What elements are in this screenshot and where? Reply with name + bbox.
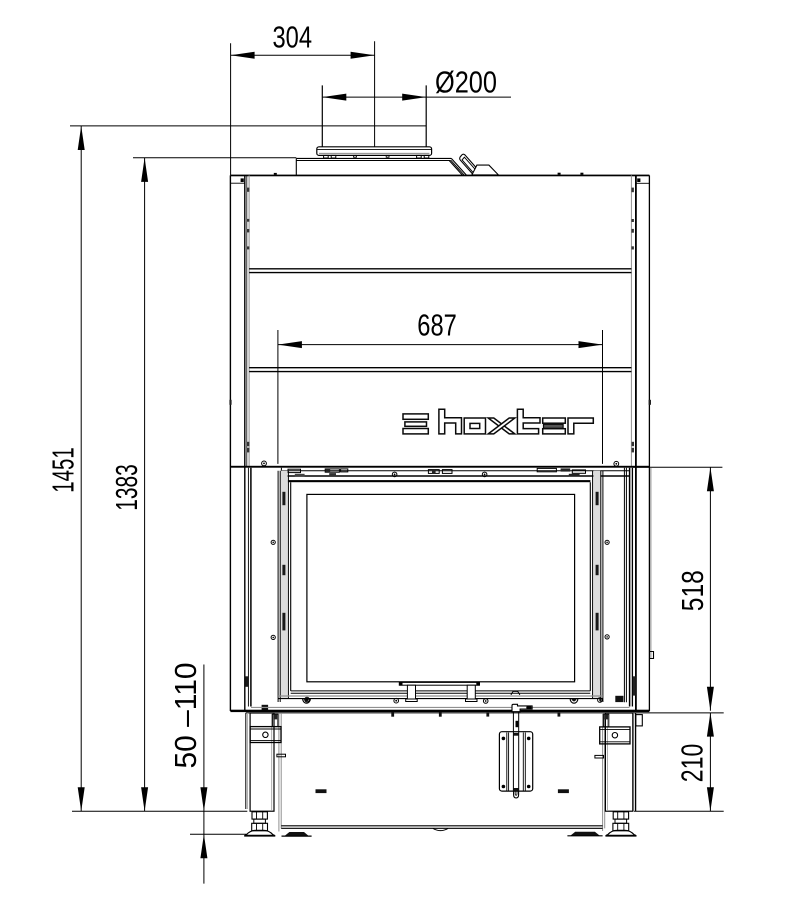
svg-text:518: 518 [675,570,710,611]
svg-text:210: 210 [675,744,710,783]
svg-text:50 –110: 50 –110 [168,663,203,769]
svg-text:1451: 1451 [46,447,81,492]
svg-text:1383: 1383 [109,464,144,511]
svg-text:687: 687 [417,307,457,342]
svg-text:304: 304 [273,19,313,54]
svg-text:Ø200: Ø200 [435,65,497,100]
